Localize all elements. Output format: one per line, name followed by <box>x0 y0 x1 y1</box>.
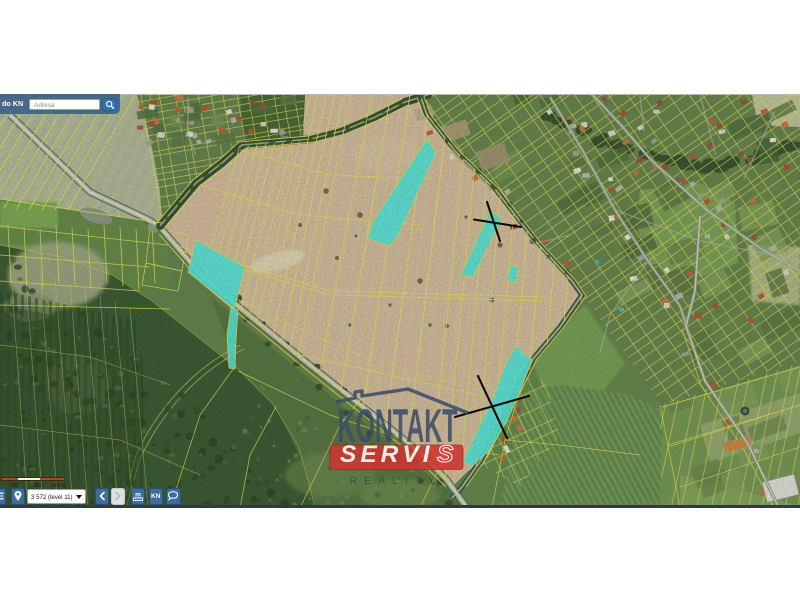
svg-text:S: S <box>437 441 454 468</box>
svg-text:SERVI: SERVI <box>340 441 434 468</box>
svg-text:REALITY: REALITY <box>350 475 443 487</box>
